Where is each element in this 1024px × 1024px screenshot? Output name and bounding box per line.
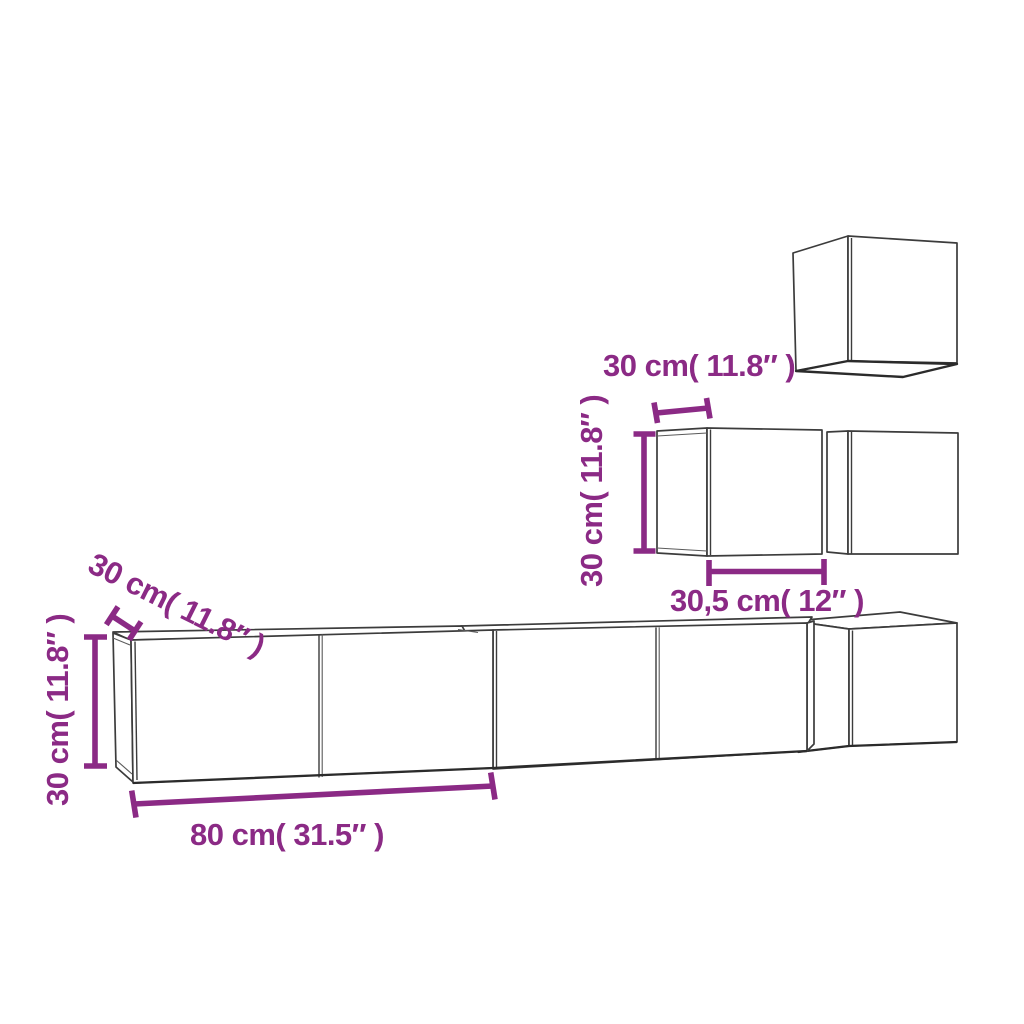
cube-top-left-face: [793, 236, 848, 371]
dim-long-width-label: 80 cm( 31.5″ ): [190, 817, 384, 852]
dim-mid-width-line: [709, 559, 824, 586]
wall-cube-top-right: [793, 236, 957, 377]
dim-mid-height-label: 30 cm( 11.8″ ): [574, 395, 609, 587]
diagram-canvas: 30 cm( 11.8″ ) 30 cm( 11.8″ ) 30,5 cm( 1…: [0, 0, 1024, 1024]
tv-left-side-face: [113, 633, 133, 782]
mid-right-cabinet-side-face: [827, 431, 848, 554]
dim-long-height-label: 30 cm( 11.8″ ): [40, 614, 75, 806]
dim-mid-depth-line: [654, 398, 710, 423]
cube-top-front-face: [848, 236, 957, 363]
wall-cube-right: [793, 612, 957, 752]
dim-top-cube-label: 30 cm( 11.8″ ): [603, 348, 795, 383]
furniture-dimension-diagram: 30 cm( 11.8″ ) 30 cm( 11.8″ ) 30,5 cm( 1…: [0, 0, 1024, 1024]
tv-right-side-face: [807, 621, 814, 751]
mid-cabinet-front-face: [707, 428, 822, 556]
wall-cabinet-mid-right: [827, 431, 958, 554]
wall-cabinet-mid: [657, 428, 822, 556]
dim-mid-width-label: 30,5 cm( 12″ ): [670, 583, 864, 618]
tv-right-front-face: [493, 623, 807, 769]
dim-mid-height-line: [634, 434, 656, 551]
cube-right-front-face: [849, 623, 957, 746]
mid-cabinet-side-face: [657, 428, 707, 556]
tv-left-front-face: [131, 630, 493, 783]
tv-cabinet-right: [461, 617, 814, 769]
dim-long-height-line: [84, 637, 107, 766]
mid-right-cabinet-front-face: [848, 431, 958, 554]
